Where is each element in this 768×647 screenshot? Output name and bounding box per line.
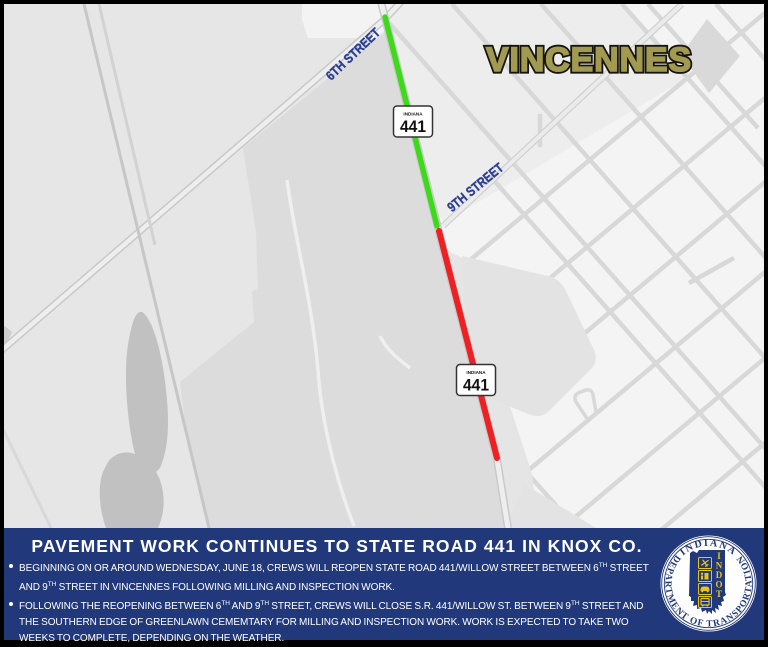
- svg-text:441: 441: [400, 117, 426, 136]
- svg-text:441: 441: [463, 376, 489, 395]
- svg-text:INDIANA: INDIANA: [403, 112, 423, 117]
- svg-text:VINCENNES: VINCENNES: [486, 41, 692, 79]
- svg-text:INDIANA: INDIANA: [466, 370, 486, 375]
